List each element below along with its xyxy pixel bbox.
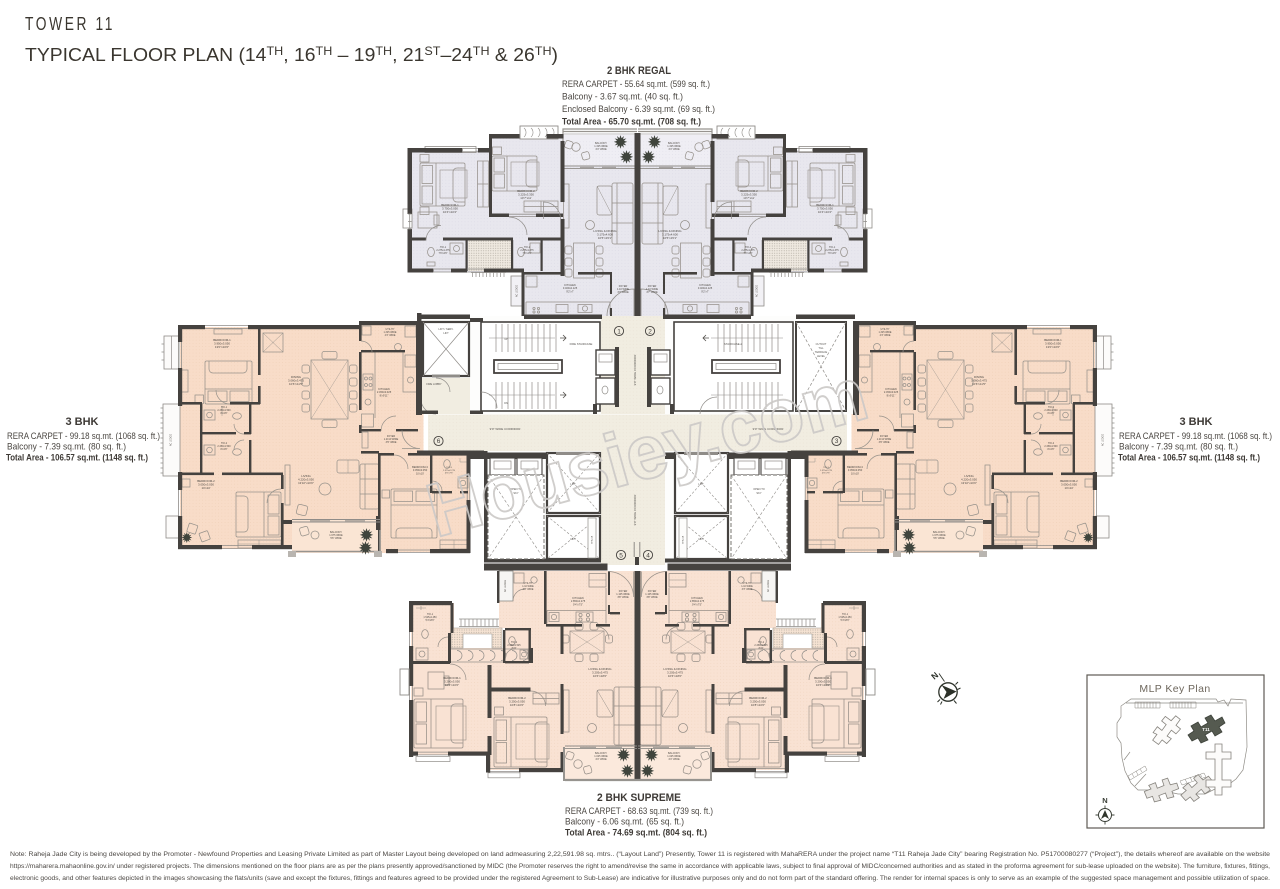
svg-text:LEVEL: LEVEL	[817, 354, 826, 358]
svg-text:AC LEDGE: AC LEDGE	[756, 285, 759, 297]
svg-text:Balcony - 7.39 sq.mt. (80 sq.: Balcony - 7.39 sq.mt. (80 sq. ft.)	[1119, 441, 1238, 452]
svg-text:FIRE STAIRCASE: FIRE STAIRCASE	[570, 342, 593, 346]
svg-text:BEDROOM-13.750x3.05010'4"x10'2: BEDROOM-13.750x3.05010'4"x10'2"	[441, 203, 459, 214]
svg-text:Note: Raheja Jade City is bein: Note: Raheja Jade City is being develope…	[10, 851, 1270, 858]
svg-text:LIFT: LIFT	[443, 331, 449, 335]
svg-text:STAIRCASE-2: STAIRCASE-2	[724, 342, 743, 346]
svg-text:AC LEDGE: AC LEDGE	[767, 580, 770, 592]
svg-text:BEDROOM-13.200x3.05010'6"x10'0: BEDROOM-13.200x3.05010'6"x10'0"	[814, 676, 832, 687]
svg-text:BALCONY1.025 WIDE4'4" WIDE: BALCONY1.025 WIDE4'4" WIDE	[594, 752, 608, 761]
svg-text:Total Area - 106.57 sq.mt. (11: Total Area - 106.57 sq.mt. (1148 sq. ft.…	[1118, 452, 1260, 463]
svg-text:BALCONY1.675 WIDE5'6" WIDE: BALCONY1.675 WIDE5'6" WIDE	[329, 531, 343, 540]
svg-text:Enclosed Balcony - 6.39 sq.mt: Enclosed Balcony - 6.39 sq.mt. (69 sq. f…	[562, 103, 715, 114]
svg-text:LIFT: LIFT	[698, 482, 704, 486]
svg-text:RERA CARPET - 55.64 sq.mt. (59: RERA CARPET - 55.64 sq.mt. (599 sq. ft.)	[562, 78, 710, 89]
svg-text:4: 4	[646, 552, 650, 559]
svg-text:MLP Key Plan: MLP Key Plan	[1139, 683, 1210, 695]
svg-text:Total Area - 106.57 sq.mt. (11: Total Area - 106.57 sq.mt. (1148 sq. ft.…	[6, 452, 148, 463]
svg-text:LIFT: LIFT	[570, 537, 576, 541]
svg-text:Balcony - 7.39 sq.mt. (80 sq.: Balcony - 7.39 sq.mt. (80 sq. ft.)	[7, 441, 126, 452]
svg-text:BEDROOM-23.250x3.05010'8"x10'0: BEDROOM-23.250x3.05010'8"x10'0"	[749, 696, 767, 707]
svg-text:UP: UP	[504, 338, 508, 341]
svg-text:BALCONY1.325 WIDE4'4" WIDE: BALCONY1.325 WIDE4'4" WIDE	[594, 142, 608, 151]
svg-text:5: 5	[619, 552, 623, 559]
svg-text:CHAJJA: CHAJJA	[591, 535, 594, 544]
svg-text:BEDROOM-13.200x3.05010'6"x10'0: BEDROOM-13.200x3.05010'6"x10'0"	[443, 676, 461, 687]
svg-text:6: 6	[437, 438, 441, 445]
svg-text:https://maharera.mahaonline.go: https://maharera.mahaonline.gov.in/ unde…	[10, 863, 1270, 870]
svg-text:BEDROOM-13.950x3.05013'0"x10'0: BEDROOM-13.950x3.05013'0"x10'0"	[213, 338, 231, 349]
svg-text:3 BHK: 3 BHK	[66, 416, 99, 428]
svg-text:RERA CARPET - 99.18 sq.mt. (10: RERA CARPET - 99.18 sq.mt. (1068 sq. ft.…	[1119, 430, 1272, 441]
svg-text:AC LEDGE: AC LEDGE	[1102, 434, 1105, 446]
svg-text:UTILITY1.10 WIDE3'3" WIDE: UTILITY1.10 WIDE3'3" WIDE	[741, 582, 753, 591]
svg-text:Total Area - 65.70 sq.mt. (708: Total Area - 65.70 sq.mt. (708 sq. ft.)	[562, 116, 701, 127]
svg-text:2 BHK REGAL: 2 BHK REGAL	[607, 65, 671, 77]
svg-text:OPEN TO: OPEN TO	[753, 487, 765, 491]
svg-text:AC LEDGE: AC LEDGE	[504, 580, 507, 592]
svg-text:electronic goods, and other fe: electronic goods, and other features dep…	[10, 875, 1270, 882]
svg-text:Total Area - 74.69 sq.mt. (804: Total Area - 74.69 sq.mt. (804 sq. ft.)	[565, 827, 707, 838]
svg-text:Balcony - 3.67 sq.mt. (40 sq.: Balcony - 3.67 sq.mt. (40 sq. ft.)	[562, 91, 683, 102]
svg-text:SKY: SKY	[756, 491, 761, 495]
svg-text:UTILITY1.10 WIDE3'3" WIDE: UTILITY1.10 WIDE3'3" WIDE	[522, 582, 534, 591]
svg-text:BEDROOM-23.250x3.05010'8"x10'0: BEDROOM-23.250x3.05010'8"x10'0"	[508, 696, 526, 707]
svg-text:BEDROOM-13.750x3.05010'4"x10'2: BEDROOM-13.750x3.05010'4"x10'2"	[816, 203, 834, 214]
svg-text:LIFT: LIFT	[698, 537, 704, 541]
svg-text:9'0" WIDE CORRIDOR: 9'0" WIDE CORRIDOR	[633, 354, 637, 386]
svg-text:RERA CARPET - 68.63 sq.mt. (73: RERA CARPET - 68.63 sq.mt. (739 sq. ft.)	[565, 805, 713, 816]
svg-text:T11: T11	[1202, 727, 1210, 732]
svg-text:BALCONY1.325 WIDE4'4" WIDE: BALCONY1.325 WIDE4'4" WIDE	[667, 142, 681, 151]
svg-text:BALCONY1.675 WIDE5'6" WIDE: BALCONY1.675 WIDE5'6" WIDE	[932, 531, 946, 540]
svg-text:AC LEDGE: AC LEDGE	[516, 285, 519, 297]
svg-text:BALCONY1.025 WIDE4'4" WIDE: BALCONY1.025 WIDE4'4" WIDE	[667, 752, 681, 761]
svg-text:AC LEDGE: AC LEDGE	[170, 434, 173, 446]
svg-text:TOWER 11: TOWER 11	[25, 13, 115, 34]
svg-text:LIFT / SERV.: LIFT / SERV.	[439, 327, 454, 331]
svg-text:TERRACE: TERRACE	[815, 350, 828, 354]
svg-text:BEDROOM-13.950x3.05013'0"x10'0: BEDROOM-13.950x3.05013'0"x10'0"	[1044, 338, 1062, 349]
svg-text:Balcony - 6.06 sq.mt. (65 sq.: Balcony - 6.06 sq.mt. (65 sq. ft.)	[565, 816, 684, 827]
svg-text:TILL: TILL	[818, 346, 824, 350]
svg-text:9'0" WIDE CORRIDOR: 9'0" WIDE CORRIDOR	[490, 427, 522, 431]
svg-text:1: 1	[617, 328, 621, 335]
svg-text:3 BHK: 3 BHK	[1180, 416, 1213, 428]
svg-text:FIRE LOBBY: FIRE LOBBY	[426, 382, 442, 386]
svg-text:DN: DN	[504, 402, 508, 405]
svg-text:RERA CARPET - 99.18 sq.mt. (10: RERA CARPET - 99.18 sq.mt. (1068 sq. ft.…	[7, 430, 160, 441]
svg-text:CHAJJA: CHAJJA	[682, 535, 685, 544]
svg-text:2 BHK SUPREME: 2 BHK SUPREME	[597, 792, 681, 804]
svg-text:N: N	[1102, 796, 1107, 805]
svg-text:CUTOUT: CUTOUT	[816, 342, 827, 346]
svg-text:2: 2	[648, 328, 652, 335]
